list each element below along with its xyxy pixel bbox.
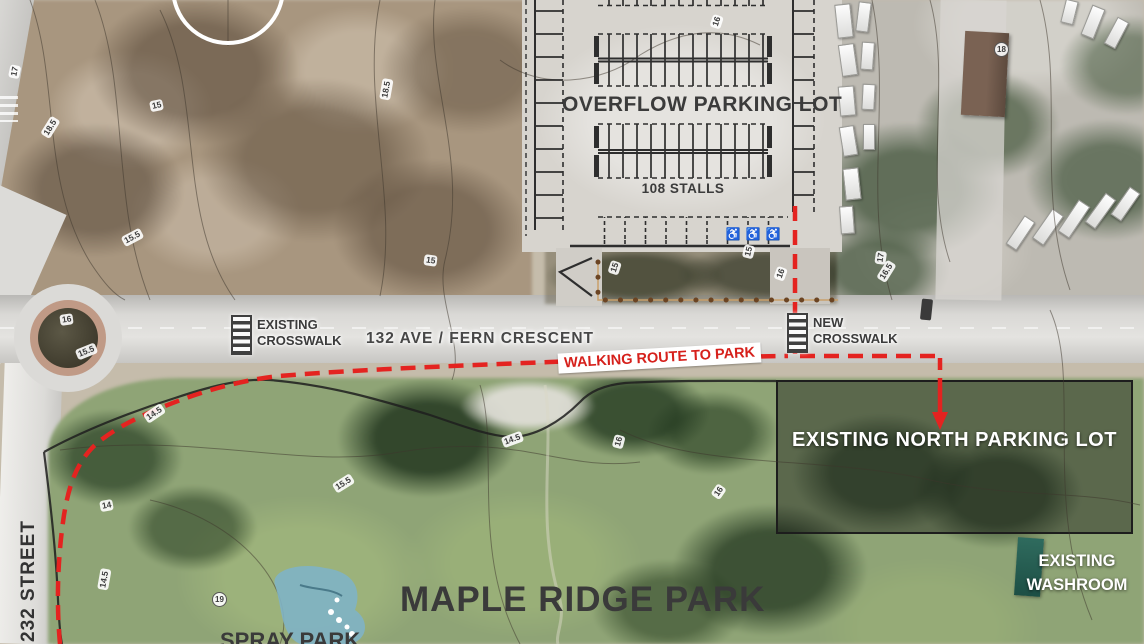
rv-trailer bbox=[839, 206, 855, 235]
street-name-232: 232 STREET bbox=[18, 520, 40, 642]
rv-trailer bbox=[842, 167, 861, 200]
minor-crosswalk-markings bbox=[0, 96, 18, 122]
existing-crosswalk-label: EXISTING CROSSWALK bbox=[257, 317, 342, 349]
contour-label: 15 bbox=[423, 254, 438, 267]
rv-trailer bbox=[860, 42, 875, 71]
forest-area-northwest bbox=[0, 0, 532, 314]
existing-crosswalk-icon bbox=[231, 315, 252, 355]
rv-trailer bbox=[861, 84, 875, 111]
rv-trailer bbox=[863, 124, 875, 150]
contour-label: 16 bbox=[59, 313, 74, 326]
stall-count-label: 108 STALLS bbox=[600, 181, 766, 196]
overflow-lot-pavement bbox=[522, 0, 842, 252]
overflow-lot-title: OVERFLOW PARKING LOT bbox=[562, 93, 842, 117]
contour-label: 18 bbox=[994, 42, 1009, 57]
new-crosswalk-icon bbox=[787, 313, 808, 353]
lot-driveway bbox=[556, 248, 602, 306]
existing-north-lot-highlight: EXISTING NORTH PARKING LOT bbox=[776, 380, 1133, 534]
road-centerline bbox=[0, 327, 1144, 329]
new-crosswalk-label: NEW CROSSWALK bbox=[813, 315, 898, 347]
washroom-label: EXISTING WASHROOM bbox=[1012, 549, 1142, 597]
contour-label: 19 bbox=[212, 592, 227, 607]
car-on-road bbox=[920, 298, 933, 320]
existing-north-lot-label: EXISTING NORTH PARKING LOT bbox=[778, 426, 1131, 454]
site-plan-map: EXISTING NORTH PARKING LOT bbox=[0, 0, 1144, 644]
spray-park-label: SPRAY PARK bbox=[220, 628, 360, 644]
park-name-label: MAPLE RIDGE PARK bbox=[400, 580, 765, 620]
rv-trailer bbox=[834, 3, 853, 38]
street-name-132-ave: 132 AVE / FERN CRESCENT bbox=[366, 330, 594, 348]
